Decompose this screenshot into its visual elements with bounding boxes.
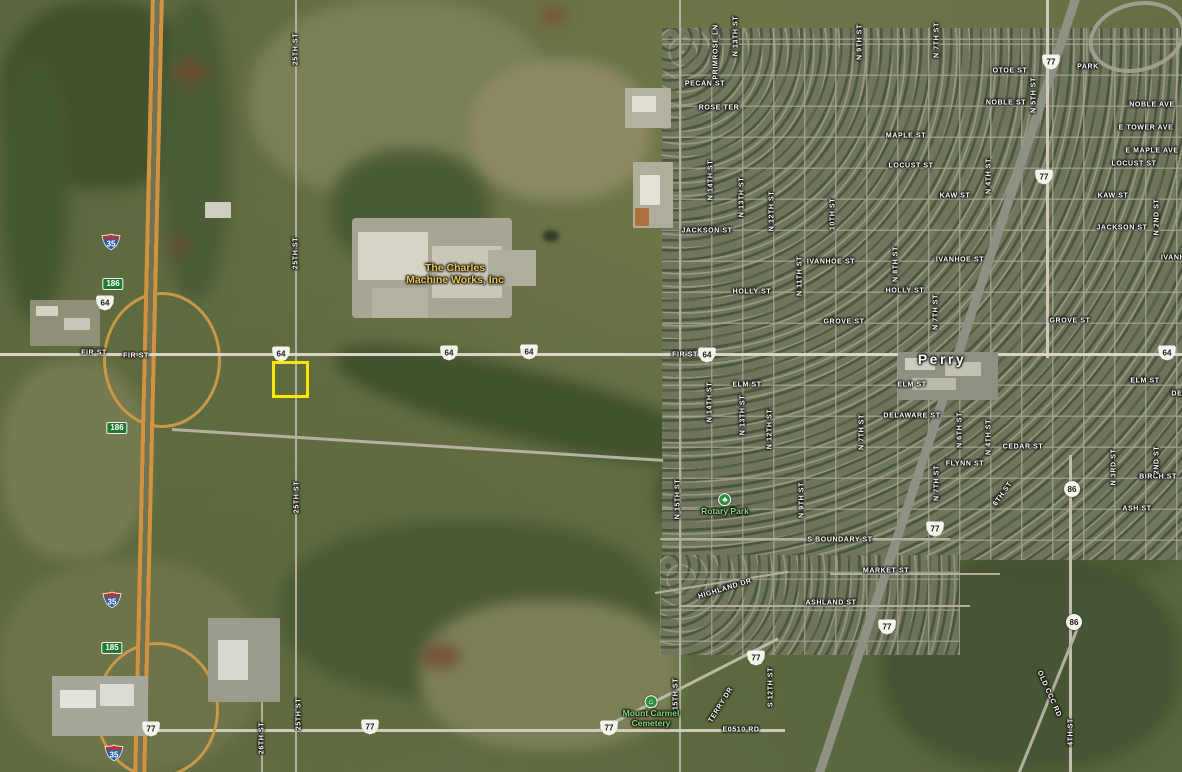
street-label: N 15TH ST bbox=[675, 479, 682, 519]
street-label: 25TH ST bbox=[293, 33, 300, 65]
forest-patch bbox=[0, 60, 70, 320]
street-label: N 12TH ST bbox=[767, 409, 774, 449]
shield-glyph: 77 bbox=[926, 522, 944, 537]
street-label: N 9TH ST bbox=[857, 24, 864, 60]
shield-glyph: 35 bbox=[102, 234, 121, 251]
street-label: 4TH ST bbox=[1068, 718, 1075, 746]
circle-86-shield: 86 bbox=[1066, 614, 1082, 630]
shield-glyph: 35 bbox=[103, 592, 122, 609]
street-label: N 7TH ST bbox=[934, 22, 941, 58]
street-label: IVANHOE ST bbox=[936, 257, 984, 264]
street-label: 26TH ST bbox=[259, 722, 266, 754]
street-label: N 8TH ST bbox=[893, 246, 900, 282]
street-label: FLYNN ST bbox=[946, 461, 984, 468]
poi-text: Machine Works, Inc bbox=[406, 274, 504, 286]
street-label: N 4TH ST bbox=[986, 158, 993, 194]
street-label: 25TH ST bbox=[294, 481, 301, 513]
street-label: ELM ST bbox=[1130, 378, 1159, 385]
street-label: N 11TH ST bbox=[797, 256, 804, 296]
street-label: ELM ST bbox=[897, 382, 926, 389]
street-label: JACKSON ST bbox=[681, 228, 732, 235]
us-77-shield: 77 bbox=[1035, 170, 1053, 185]
poi-text: Cemetery bbox=[632, 719, 671, 729]
dirt-patch bbox=[168, 238, 188, 252]
street-label: HOLLY ST bbox=[733, 289, 772, 296]
us-64-shield: 64 bbox=[698, 348, 716, 363]
street-label: GROVE ST bbox=[824, 319, 865, 326]
street-label: TERRY DR bbox=[707, 686, 734, 724]
street-label: CEDAR ST bbox=[1003, 444, 1044, 451]
shield-glyph: 35 bbox=[105, 745, 124, 762]
shield-glyph: 77 bbox=[1042, 55, 1060, 70]
street-label: FIR ST bbox=[672, 352, 698, 359]
shield-glyph: 64 bbox=[440, 346, 458, 361]
street-label: IVANHOE ST bbox=[1161, 255, 1182, 262]
street-label: N 12TH ST bbox=[769, 191, 776, 231]
street-label: KAW ST bbox=[940, 193, 971, 200]
street-label: MAPLE ST bbox=[886, 133, 926, 140]
shield-glyph: 77 bbox=[600, 721, 618, 736]
street-label: E0510 RD bbox=[722, 727, 759, 734]
dirt-patch bbox=[540, 8, 566, 24]
us-64-shield: 64 bbox=[520, 345, 538, 360]
street-label: GROVE ST bbox=[1050, 318, 1091, 325]
shield-glyph: 64 bbox=[698, 348, 716, 363]
s-boundary-st bbox=[660, 538, 950, 540]
building bbox=[640, 175, 660, 205]
street-label: PRIMROSE LN bbox=[713, 24, 720, 79]
exit-186-shield: 186 bbox=[106, 422, 127, 434]
interstate-35-shield: 35 bbox=[105, 745, 124, 762]
exit-185-shield: 185 bbox=[101, 642, 122, 654]
us-64-shield: 64 bbox=[272, 347, 290, 362]
street-label: ASH ST bbox=[1122, 506, 1151, 513]
charles-machine-works-label: The CharlesMachine Works, Inc bbox=[406, 262, 504, 286]
building bbox=[372, 288, 428, 318]
exit-186-shield: 186 bbox=[102, 278, 123, 290]
satellite-map[interactable]: PerryPECAN STROSE TEROTOE STPARKNOBLE ST… bbox=[0, 0, 1182, 772]
shield-glyph: 77 bbox=[142, 722, 160, 737]
street-label: JACKSON ST bbox=[1096, 225, 1147, 232]
shield-glyph: 77 bbox=[747, 651, 765, 666]
i35-ramp-loop bbox=[103, 292, 221, 428]
shield-glyph: 86 bbox=[1066, 614, 1082, 630]
fir-st-us64 bbox=[0, 353, 1182, 356]
shield-glyph: 64 bbox=[520, 345, 538, 360]
street-label: ELM ST bbox=[732, 382, 761, 389]
street-label: ASHLAND ST bbox=[805, 600, 856, 607]
poi-text: The Charles bbox=[425, 262, 485, 274]
shield-glyph: 186 bbox=[106, 422, 127, 434]
street-label: KAW ST bbox=[1098, 193, 1129, 200]
us-77-shield: 77 bbox=[361, 720, 379, 735]
street-label: PARK bbox=[1077, 64, 1099, 71]
street-label: IVANHOE ST bbox=[807, 259, 855, 266]
street-label: DELAWARE ST bbox=[1171, 391, 1182, 398]
road-15th-st bbox=[679, 0, 681, 772]
street-label: FIR ST bbox=[81, 350, 107, 357]
building bbox=[64, 318, 90, 330]
street-label: BIRCH ST bbox=[1139, 474, 1177, 481]
city-label: Perry bbox=[918, 351, 966, 367]
us-64-shield: 64 bbox=[96, 296, 114, 311]
street-label: N 3RD ST bbox=[1111, 449, 1118, 486]
street-label: FIR ST bbox=[123, 353, 149, 360]
street-label: MARKET ST bbox=[863, 568, 909, 575]
street-label: OTOE ST bbox=[993, 68, 1028, 75]
street-label: ROSE TER bbox=[699, 105, 740, 112]
street-label: N 4TH ST bbox=[986, 419, 993, 455]
street-label: E TOWER AVE bbox=[1119, 125, 1174, 132]
street-label: N 13TH ST bbox=[733, 16, 740, 56]
street-label: S 12TH ST bbox=[768, 667, 775, 707]
us-64-shield: 64 bbox=[440, 346, 458, 361]
street-label: N 13TH ST bbox=[740, 395, 747, 435]
interstate-35-shield: 35 bbox=[103, 592, 122, 609]
shield-glyph: 86 bbox=[1064, 481, 1080, 497]
shield-glyph: 77 bbox=[361, 720, 379, 735]
street-label: N 5TH ST bbox=[1031, 77, 1038, 113]
street-label: N 6TH ST bbox=[957, 412, 964, 448]
street-label: LOCUST ST bbox=[1111, 161, 1156, 168]
dirt-patch bbox=[175, 62, 205, 82]
rotary-park-label: ♣Rotary Park bbox=[701, 493, 749, 517]
building bbox=[635, 208, 649, 226]
street-label: 25TH ST bbox=[293, 237, 300, 269]
street-label: DELAWARE ST bbox=[883, 413, 940, 420]
shield-glyph: 186 bbox=[102, 278, 123, 290]
us-77-shield: 77 bbox=[926, 522, 944, 537]
us-77-shield: 77 bbox=[878, 620, 896, 635]
street-label: N 7TH ST bbox=[933, 294, 940, 330]
us-77-shield: 77 bbox=[600, 721, 618, 736]
street-label: S BOUNDARY ST bbox=[807, 537, 872, 544]
street-label: N 7TH ST bbox=[859, 414, 866, 450]
cemetery-icon: ⌂ bbox=[644, 695, 657, 708]
street-label: 10TH ST bbox=[830, 198, 837, 230]
building bbox=[60, 690, 96, 708]
dirt-patch bbox=[420, 645, 460, 667]
shield-glyph: 64 bbox=[96, 296, 114, 311]
market-st bbox=[830, 573, 1000, 575]
street-label: N 14TH ST bbox=[707, 382, 714, 422]
forest-patch bbox=[160, 0, 230, 300]
selection-rectangle[interactable] bbox=[272, 361, 309, 398]
street-label: PECAN ST bbox=[685, 81, 725, 88]
street-label: N 2ND ST bbox=[1154, 199, 1161, 236]
street-label: LOCUST ST bbox=[888, 163, 933, 170]
building bbox=[632, 96, 656, 112]
street-label: N 9TH ST bbox=[799, 482, 806, 518]
street-label: E MAPLE AVE bbox=[1125, 148, 1178, 155]
building bbox=[205, 202, 231, 218]
us-64-shield: 64 bbox=[1158, 346, 1176, 361]
building bbox=[36, 306, 58, 316]
shield-glyph: 77 bbox=[878, 620, 896, 635]
street-label: 2ND ST bbox=[1154, 446, 1161, 475]
building bbox=[218, 640, 248, 680]
shield-glyph: 64 bbox=[272, 347, 290, 362]
shield-glyph: 185 bbox=[101, 642, 122, 654]
street-label: 25TH ST bbox=[296, 698, 303, 730]
street-label: N 13TH ST bbox=[739, 177, 746, 217]
us-77-shield: 77 bbox=[142, 722, 160, 737]
street-label: NOBLE AVE bbox=[1129, 102, 1174, 109]
pond bbox=[543, 230, 559, 242]
interstate-35-shield: 35 bbox=[102, 234, 121, 251]
us-77-shield: 77 bbox=[1042, 55, 1060, 70]
building bbox=[100, 684, 134, 706]
tree-icon: ♣ bbox=[719, 493, 732, 506]
poi-text: Rotary Park bbox=[701, 507, 749, 517]
street-label: N 14TH ST bbox=[708, 160, 715, 200]
shield-glyph: 77 bbox=[1035, 170, 1053, 185]
circle-86-shield: 86 bbox=[1064, 481, 1080, 497]
shield-glyph: 64 bbox=[1158, 346, 1176, 361]
us-77-shield: 77 bbox=[747, 651, 765, 666]
street-label: HOLLY ST bbox=[886, 288, 925, 295]
street-label: NOBLE ST bbox=[986, 100, 1026, 107]
mount-carmel-cemetery-label: ⌂Mount CarmelCemetery bbox=[623, 695, 680, 729]
field-patch bbox=[470, 60, 650, 200]
street-label: N 7TH ST bbox=[934, 465, 941, 501]
